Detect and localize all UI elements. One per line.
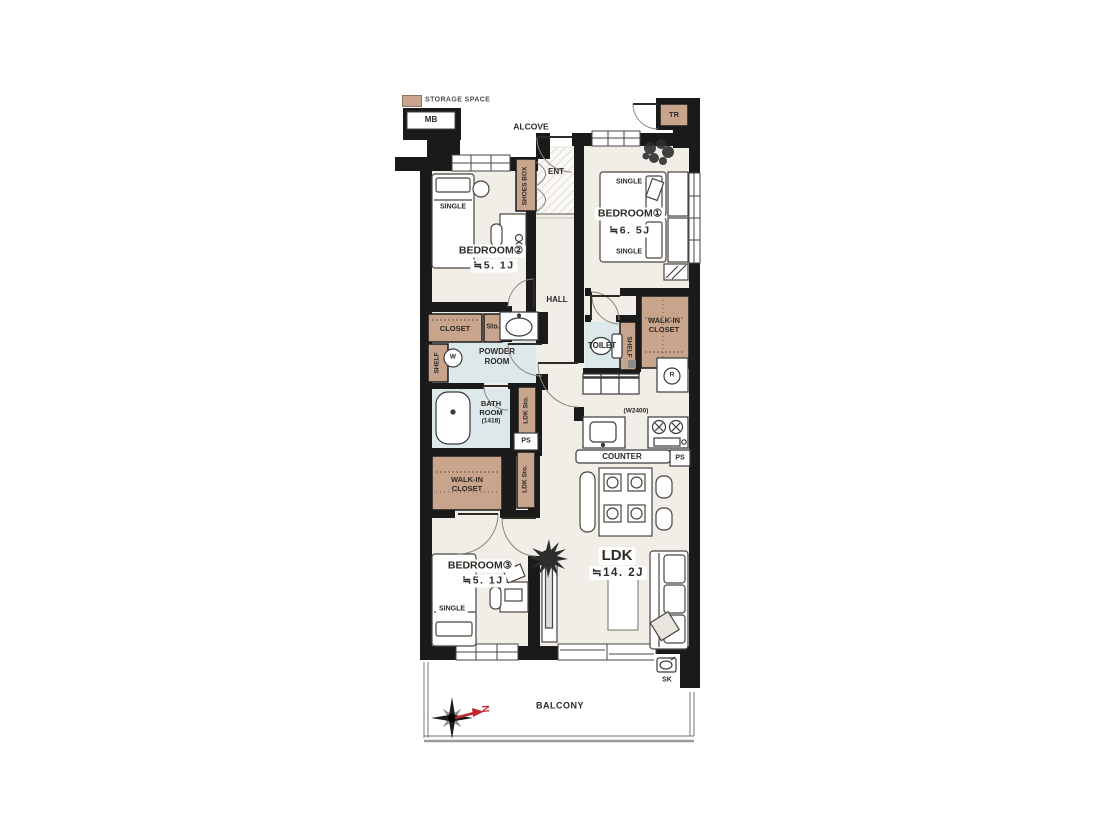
trunk-room-label: TR xyxy=(669,111,679,119)
fridge-label: R xyxy=(670,373,675,380)
bedroom1-name: BEDROOM① xyxy=(595,207,665,220)
bedroom2-name: BEDROOM② xyxy=(456,244,526,257)
alcove-label: ALCOVE xyxy=(513,123,548,132)
bedroom1-bed1-label: SINGLE xyxy=(613,177,645,186)
walk-in-closet-bottom-label-1: WALK-IN xyxy=(451,476,483,484)
bath-room-size: (1418) xyxy=(482,419,501,426)
walk-in-closet-top-label-1: WALK-IN xyxy=(648,317,680,325)
bedroom3-bed-label: SINGLE xyxy=(436,604,468,613)
bedroom2-bed-label: SINGLE xyxy=(437,202,469,211)
powder-room-label-1: POWDER xyxy=(479,348,515,356)
ldk-sto-lower-label: LDK Sto. xyxy=(523,465,530,492)
sto-label: Sto. xyxy=(486,323,499,330)
bedroom3-size: ≒5. 1J xyxy=(459,574,506,587)
entrance-label: ENT xyxy=(548,168,564,176)
ldk-sto-upper-label: LDK Sto. xyxy=(524,396,531,423)
ps-lower-label: PS xyxy=(675,454,684,461)
hall-label: HALL xyxy=(546,296,567,304)
washer-label: W xyxy=(450,355,456,362)
kitchen-width-label: (W2400) xyxy=(624,409,649,416)
meter-box-label: MB xyxy=(425,116,437,124)
ldk-name: LDK xyxy=(599,547,636,565)
ps-upper-label: PS xyxy=(521,437,530,444)
walk-in-closet-top-label-2: CLOSET xyxy=(649,326,679,334)
storage-legend-swatch xyxy=(402,95,422,107)
balcony-label: BALCONY xyxy=(536,701,584,710)
shoes-box-label: SHOES BOX xyxy=(523,167,530,206)
bath-room-label-1: BATH xyxy=(481,400,501,408)
bath-room-label-2: ROOM xyxy=(479,409,502,417)
compass-north-label: N xyxy=(478,705,489,713)
shelf-left-label: SHELF xyxy=(435,352,442,373)
toilet-label: TOILET xyxy=(588,342,616,350)
compass-icon xyxy=(431,697,484,739)
walk-in-closet-bottom-label-2: CLOSET xyxy=(452,485,482,493)
bedroom2-size: ≒5. 1J xyxy=(470,259,517,272)
bedroom3-name: BEDROOM③ xyxy=(445,559,515,572)
floor-plan-canvas: STORAGE SPACE MB ALCOVE TR SHOES BOX ENT… xyxy=(0,0,1100,827)
slop-sink-label: SK xyxy=(662,676,672,683)
bedroom1-bed2-label: SINGLE xyxy=(613,247,645,256)
storage-legend-label: STORAGE SPACE xyxy=(425,96,490,103)
bedroom1-size: ≒6. 5J xyxy=(606,224,653,237)
shelf-right-label: SHELF xyxy=(625,336,632,357)
closet-label: CLOSET xyxy=(440,325,470,333)
counter-label: COUNTER xyxy=(602,453,642,461)
powder-room-label-2: ROOM xyxy=(485,358,510,366)
ldk-size: ≒14. 2J xyxy=(589,566,647,580)
